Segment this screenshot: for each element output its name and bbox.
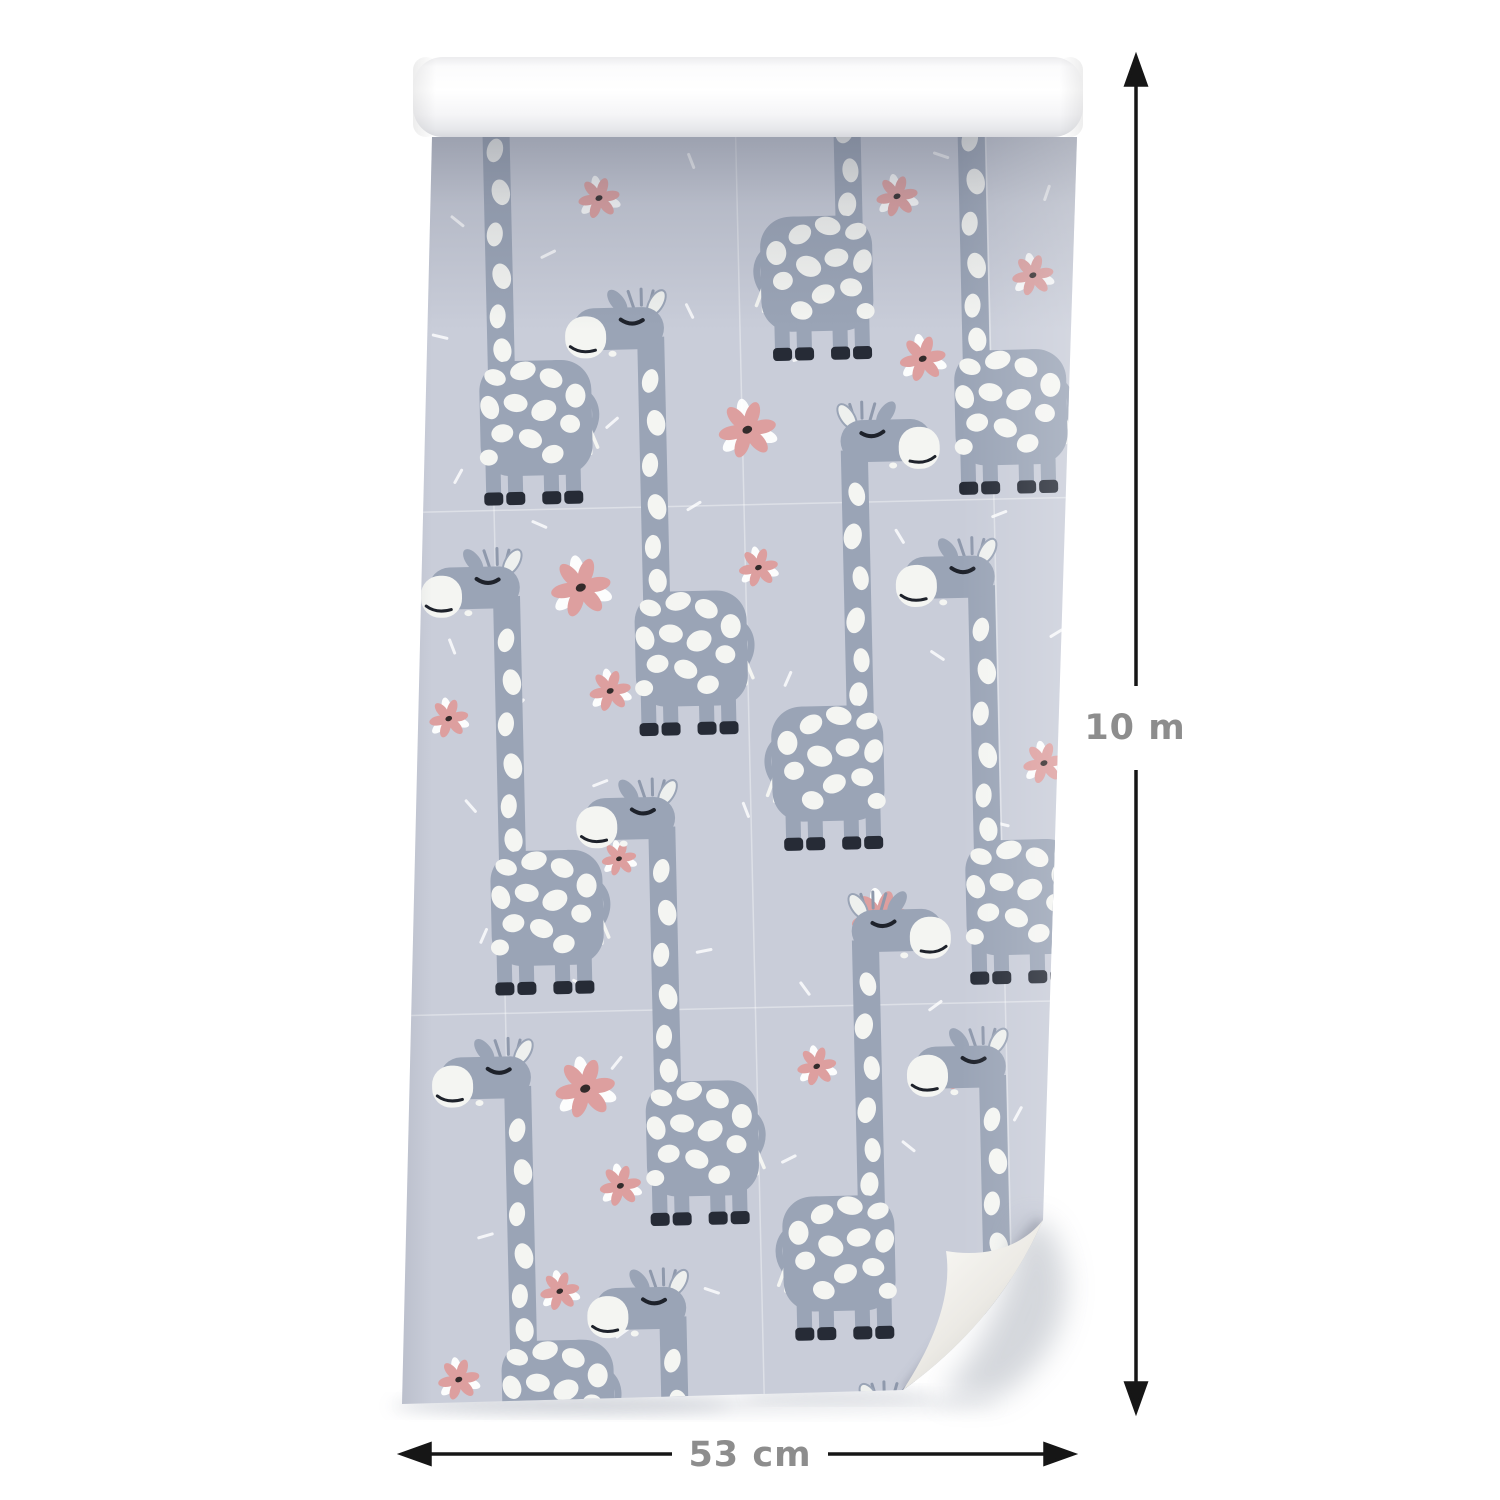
width-label: 53 cm bbox=[688, 1435, 811, 1475]
left-edge-shade bbox=[395, 137, 432, 1407]
arrow-left-icon bbox=[402, 1444, 430, 1464]
height-label: 10 m bbox=[1084, 708, 1185, 748]
roll-right-cap bbox=[1057, 57, 1083, 137]
roll-left-cap bbox=[413, 57, 439, 137]
wallpaper-product-image: 10 m 53 cm bbox=[0, 0, 1500, 1500]
right-edge-light bbox=[960, 137, 1080, 1287]
roll-top bbox=[413, 57, 1083, 137]
arrow-down-icon bbox=[1126, 1383, 1146, 1411]
product-scene bbox=[0, 0, 1500, 1500]
arrow-right-icon bbox=[1045, 1444, 1073, 1464]
arrow-up-icon bbox=[1126, 57, 1146, 85]
